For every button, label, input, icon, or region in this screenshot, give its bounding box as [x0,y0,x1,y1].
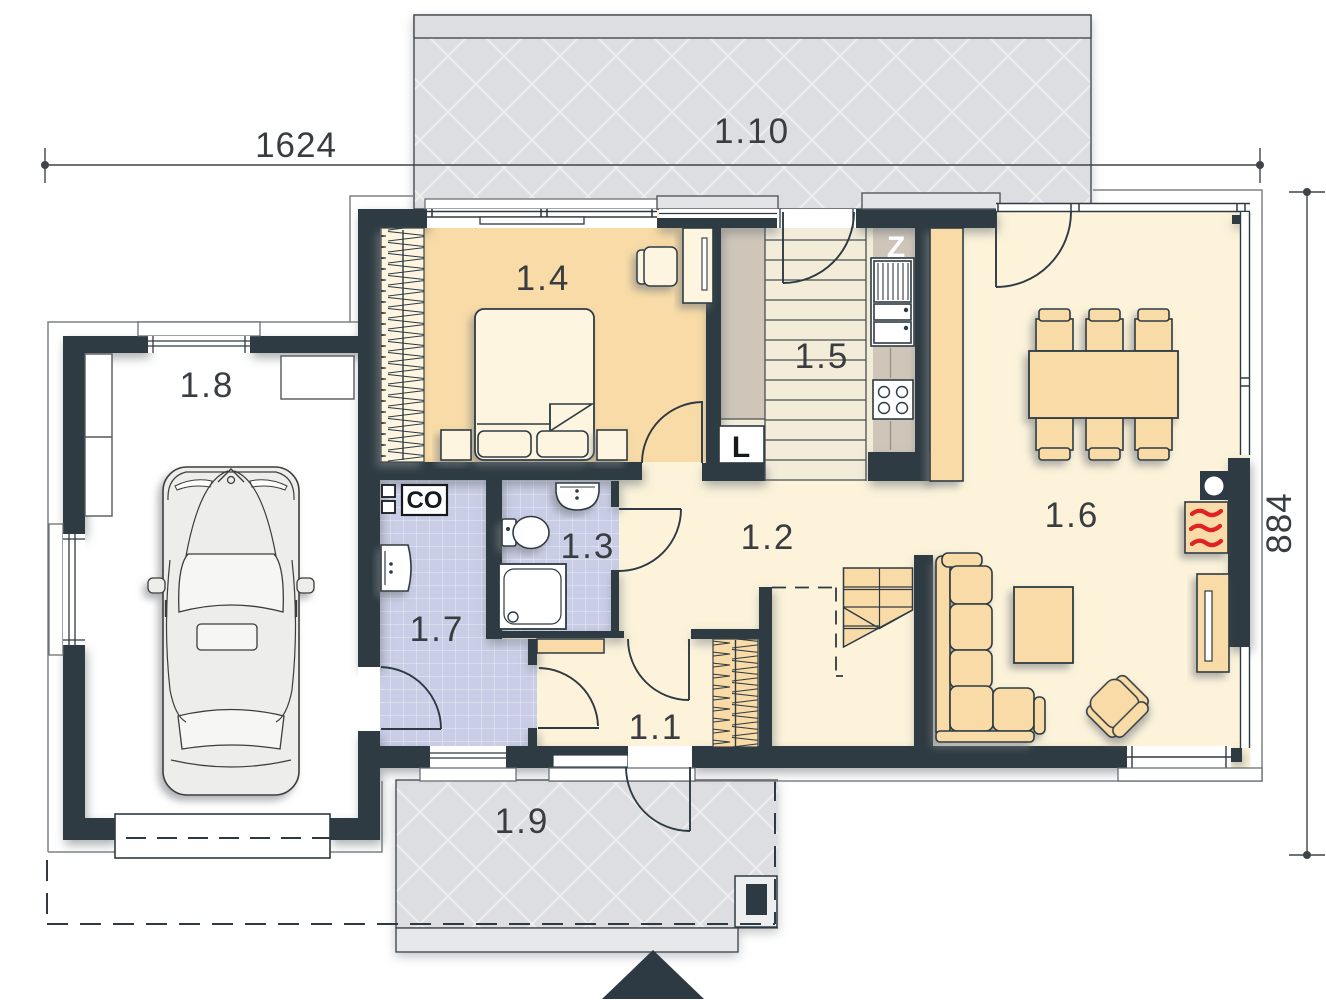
svg-text:1.8: 1.8 [180,366,235,405]
svg-text:884: 884 [1260,492,1299,553]
svg-text:1.10: 1.10 [714,112,790,151]
svg-text:1.1: 1.1 [629,708,684,747]
svg-text:1.7: 1.7 [410,610,465,649]
svg-text:1.6: 1.6 [1045,496,1100,535]
svg-text:1.3: 1.3 [561,527,616,566]
svg-text:L: L [732,431,750,464]
svg-text:1.5: 1.5 [795,337,850,376]
svg-text:1.2: 1.2 [741,518,796,557]
svg-text:CO: CO [407,487,443,514]
svg-text:1.4: 1.4 [516,259,571,298]
svg-text:1624: 1624 [255,126,337,165]
svg-text:1.9: 1.9 [495,802,550,841]
